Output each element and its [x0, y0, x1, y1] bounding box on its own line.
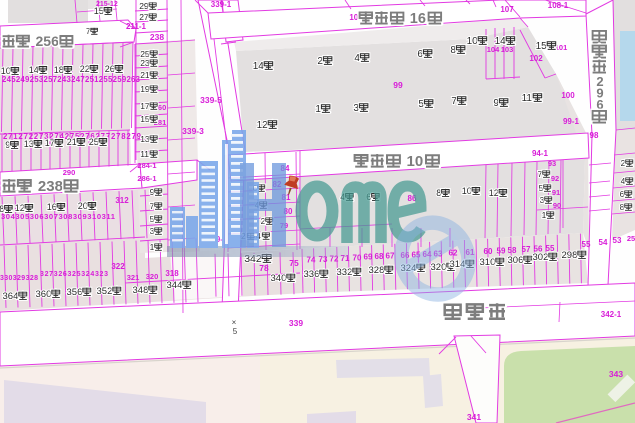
- svg-text:59: 59: [497, 246, 506, 255]
- svg-text:330329328: 330329328: [0, 275, 38, 282]
- svg-text:70: 70: [353, 253, 362, 262]
- svg-text:12: 12: [15, 203, 25, 213]
- svg-text:100: 100: [561, 91, 575, 100]
- svg-text:15: 15: [94, 6, 104, 16]
- svg-text:364: 364: [3, 291, 19, 302]
- svg-text:69: 69: [364, 253, 373, 262]
- svg-text:339-5: 339-5: [200, 95, 222, 105]
- svg-text:57: 57: [522, 245, 531, 254]
- svg-text:10: 10: [467, 36, 479, 47]
- svg-text:11: 11: [522, 93, 533, 104]
- svg-text:12: 12: [489, 188, 499, 198]
- svg-text:53: 53: [613, 236, 622, 245]
- svg-text:238: 238: [38, 178, 63, 195]
- svg-text:108-1: 108-1: [548, 1, 569, 10]
- svg-text:306: 306: [508, 255, 524, 266]
- svg-text:23: 23: [140, 58, 150, 68]
- svg-text:55: 55: [582, 240, 591, 249]
- svg-text:68: 68: [375, 252, 384, 261]
- svg-text:13: 13: [140, 134, 150, 144]
- svg-text:17: 17: [140, 101, 150, 111]
- svg-text:102: 102: [529, 54, 543, 63]
- svg-text:107: 107: [500, 5, 514, 14]
- svg-text:90: 90: [553, 201, 561, 210]
- svg-text:16: 16: [410, 11, 426, 27]
- svg-text:22: 22: [80, 64, 90, 74]
- svg-text:19: 19: [140, 84, 150, 94]
- svg-text:99: 99: [393, 80, 403, 90]
- svg-text:298: 298: [562, 250, 578, 261]
- svg-text:310: 310: [480, 257, 496, 268]
- svg-text:14: 14: [253, 61, 265, 72]
- svg-text:339-1: 339-1: [211, 0, 232, 9]
- svg-text:339-3: 339-3: [182, 126, 204, 136]
- svg-text:302: 302: [533, 252, 549, 263]
- svg-text:321: 321: [127, 273, 140, 282]
- svg-text:343: 343: [609, 369, 623, 379]
- svg-text:98: 98: [590, 131, 599, 140]
- svg-text:286-1: 286-1: [137, 174, 156, 183]
- svg-text:14: 14: [29, 65, 39, 75]
- svg-text:21: 21: [140, 70, 150, 80]
- svg-text:10: 10: [462, 186, 472, 196]
- svg-text:10: 10: [1, 66, 11, 76]
- svg-text:360: 360: [36, 289, 52, 300]
- svg-text:21: 21: [67, 137, 77, 147]
- svg-text:75: 75: [289, 258, 299, 268]
- svg-text:327326325324323: 327326325324323: [40, 271, 108, 278]
- svg-text:20: 20: [78, 201, 88, 211]
- svg-text:312: 312: [115, 196, 129, 205]
- svg-text:318: 318: [165, 269, 179, 278]
- svg-text:342-1: 342-1: [601, 310, 622, 319]
- svg-text:284-1: 284-1: [137, 161, 156, 170]
- svg-text:92: 92: [551, 174, 559, 183]
- svg-text:290: 290: [63, 168, 76, 177]
- svg-text:336: 336: [304, 269, 320, 280]
- svg-text:14: 14: [495, 36, 507, 47]
- svg-text:67: 67: [386, 252, 395, 261]
- svg-text:238: 238: [150, 32, 164, 42]
- svg-text:13: 13: [24, 139, 34, 149]
- svg-text:10: 10: [407, 153, 424, 170]
- svg-text:58: 58: [508, 246, 517, 255]
- svg-text:93: 93: [548, 159, 556, 168]
- svg-text:340: 340: [271, 273, 287, 284]
- svg-text:15: 15: [536, 41, 548, 52]
- svg-text:320: 320: [146, 272, 159, 281]
- svg-text:339: 339: [289, 318, 303, 328]
- svg-text:320: 320: [431, 262, 447, 273]
- svg-text:×: ×: [232, 318, 237, 327]
- svg-text:27: 27: [139, 12, 149, 22]
- svg-text:332: 332: [337, 267, 353, 278]
- svg-text:211-1: 211-1: [126, 22, 147, 31]
- svg-text:16: 16: [47, 202, 57, 212]
- svg-text:11: 11: [140, 149, 149, 159]
- svg-text:322: 322: [111, 262, 125, 271]
- svg-text:17: 17: [45, 138, 55, 148]
- svg-text:54: 54: [599, 238, 608, 247]
- svg-text:352: 352: [97, 286, 113, 297]
- svg-text:328: 328: [369, 265, 385, 276]
- svg-text:26: 26: [105, 64, 115, 74]
- svg-text:304305306307308309310311: 304305306307308309310311: [1, 212, 116, 221]
- svg-text:245249253257243247251255259263: 245249253257243247251255259263: [2, 75, 141, 84]
- svg-text:99-1: 99-1: [563, 117, 580, 126]
- svg-text:348: 348: [133, 285, 149, 296]
- svg-text:256: 256: [36, 33, 60, 49]
- svg-text:25: 25: [627, 234, 635, 243]
- svg-text:94-1: 94-1: [532, 149, 549, 158]
- svg-text:356: 356: [67, 287, 83, 298]
- svg-text:15: 15: [140, 114, 150, 124]
- svg-text:5: 5: [233, 327, 238, 336]
- svg-text:18: 18: [54, 65, 64, 75]
- svg-text:12: 12: [257, 120, 269, 131]
- svg-text:25: 25: [89, 137, 99, 147]
- svg-text:60: 60: [484, 247, 493, 256]
- svg-text:29: 29: [139, 1, 149, 11]
- svg-text:341: 341: [467, 412, 481, 422]
- svg-text:344: 344: [167, 280, 183, 291]
